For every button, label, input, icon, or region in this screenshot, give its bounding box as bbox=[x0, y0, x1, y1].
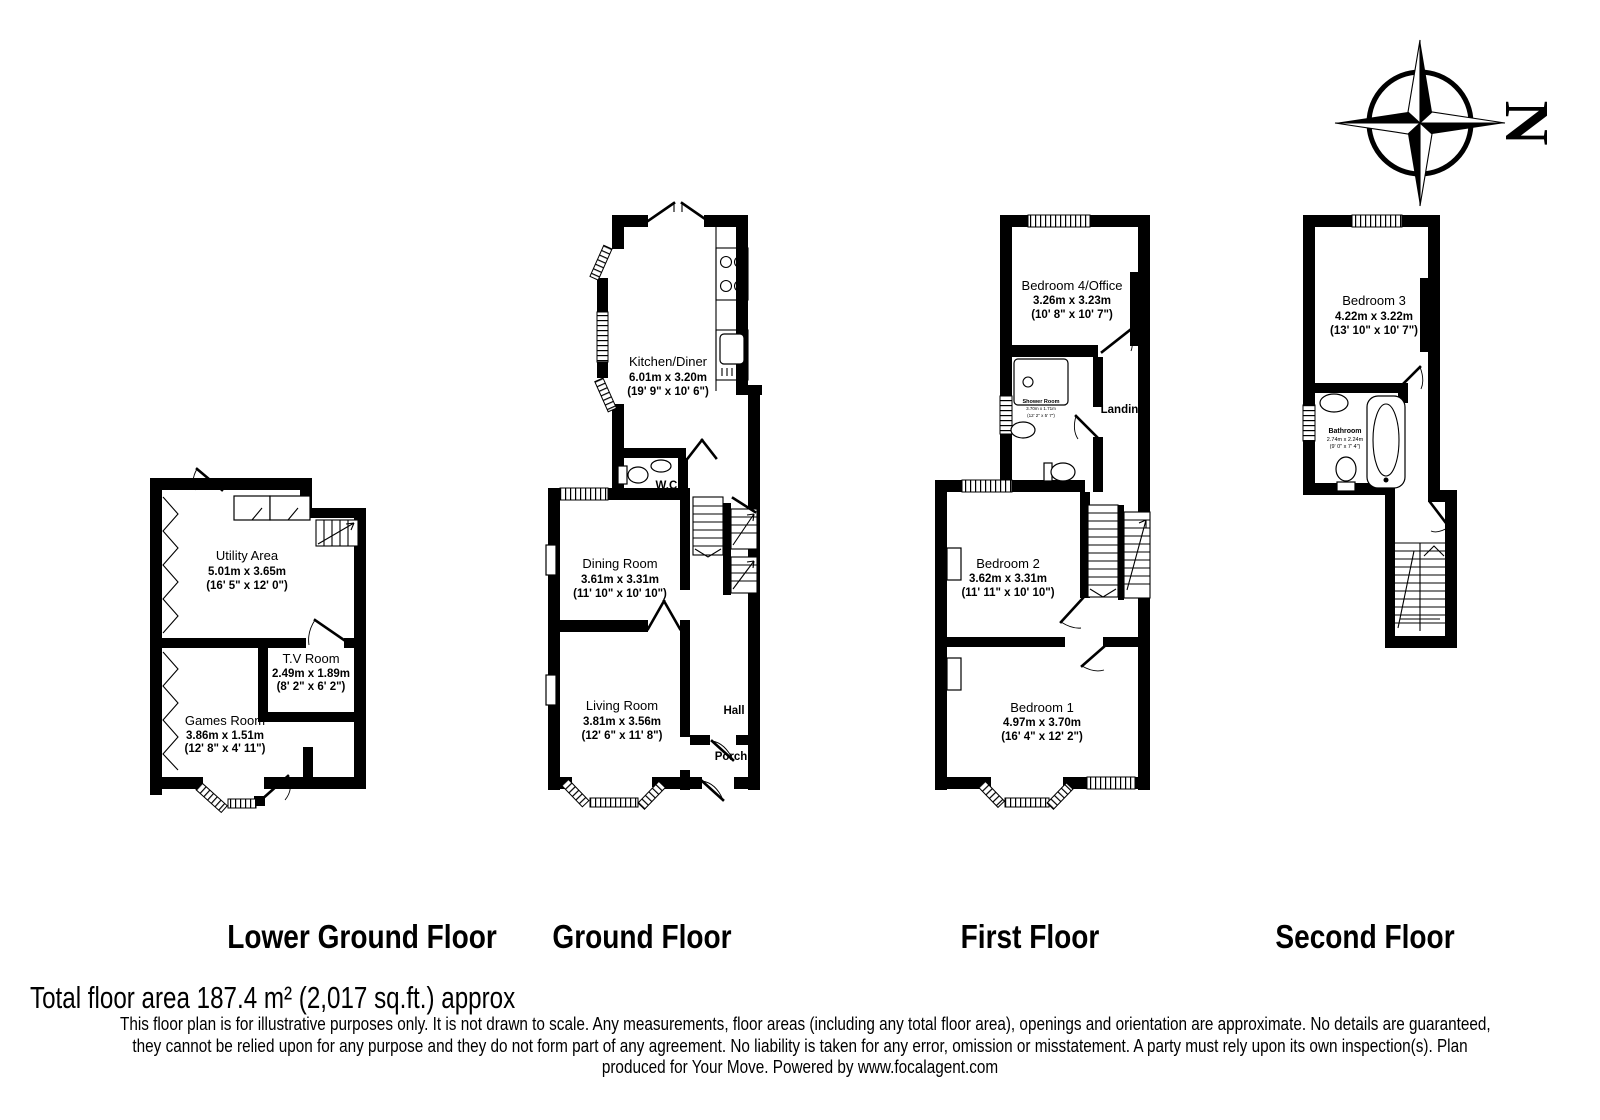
dining-window bbox=[560, 488, 608, 500]
room-size-imperial: (11' 10" x 10' 10") bbox=[573, 588, 667, 600]
basin-icon bbox=[1011, 422, 1035, 438]
stairs bbox=[1395, 543, 1445, 631]
room-size-metric: 3.26m x 3.23m bbox=[1033, 295, 1111, 307]
room-size-imperial: (12' 8" x 4' 11") bbox=[185, 743, 266, 755]
room-size-metric: 3.62m x 3.31m bbox=[969, 573, 1047, 585]
room-name: Bedroom 2 bbox=[976, 556, 1040, 571]
floor-title-first: First Floor bbox=[961, 918, 1100, 956]
room-size-metric: 3.86m x 1.51m bbox=[186, 730, 264, 742]
room-size-imperial: (19' 9" x 10' 6") bbox=[627, 386, 709, 398]
compass-north-letter: N bbox=[1492, 101, 1560, 146]
floorplan-second: Bedroom 3 4.22m x 3.22m (13' 10" x 10' 7… bbox=[1303, 215, 1457, 648]
kitchen-windows bbox=[590, 245, 616, 411]
room-name: Bathroom bbox=[1328, 428, 1361, 435]
room-size-metric: 5.01m x 3.65m bbox=[208, 566, 286, 578]
shower-room-fixtures bbox=[1011, 359, 1075, 481]
total-floor-area: Total floor area 187.4 m² (2,017 sq.ft.)… bbox=[30, 980, 515, 1016]
bay-window bbox=[979, 781, 1073, 809]
room-name: Bedroom 3 bbox=[1342, 293, 1406, 308]
bathtub-icon bbox=[1367, 396, 1405, 488]
bay-window bbox=[562, 779, 666, 809]
floor-title-lower-ground: Lower Ground Floor bbox=[227, 918, 497, 956]
floorplan-lower-ground: Utility Area 5.01m x 3.65m (16' 5" x 12'… bbox=[150, 469, 366, 812]
room-size-imperial: (16' 5" x 12' 0") bbox=[206, 580, 288, 592]
room-size-metric: 6.01m x 3.20m bbox=[629, 372, 707, 384]
disclaimer: This floor plan is for illustrative purp… bbox=[0, 1014, 1600, 1079]
toilet-icon bbox=[618, 466, 648, 484]
room-size-imperial: (12' 2" x 5' 7") bbox=[1027, 413, 1055, 418]
floorplan-ground: Kitchen/Diner 6.01m x 3.20m (19' 9" x 10… bbox=[546, 203, 762, 809]
room-size-metric: 3.61m x 3.31m bbox=[581, 574, 659, 586]
room-size-imperial: (16' 4" x 12' 2") bbox=[1001, 731, 1083, 743]
room-name: W.C. bbox=[656, 480, 681, 492]
room-name: Shower Room bbox=[1023, 399, 1060, 405]
bay-window bbox=[196, 783, 256, 812]
floor-title-second: Second Floor bbox=[1275, 918, 1454, 956]
floorplan-first: Bedroom 4/Office 3.26m x 3.23m (10' 8" x… bbox=[935, 215, 1150, 809]
room-name: Bedroom 4/Office bbox=[1022, 278, 1123, 293]
fitted-units bbox=[234, 496, 310, 520]
stairs bbox=[316, 520, 358, 546]
room-size-imperial: (8' 2" x 6' 2") bbox=[277, 681, 346, 693]
room-size-imperial: (12' 6" x 11' 8") bbox=[582, 730, 663, 742]
room-size-metric: 3.81m x 3.56m bbox=[583, 716, 661, 728]
room-name: Games Room bbox=[185, 713, 265, 728]
room-size-imperial: (10' 8" x 10' 7") bbox=[1031, 309, 1113, 321]
room-size-metric: 4.22m x 3.22m bbox=[1335, 311, 1413, 323]
room-size-metric: 4.97m x 3.70m bbox=[1003, 717, 1081, 729]
room-size-metric: 2.74m x 2.24m bbox=[1327, 437, 1364, 443]
chimney-alcoves bbox=[947, 548, 961, 690]
room-name: Kitchen/Diner bbox=[629, 354, 708, 369]
disclaimer-line: produced for Your Move. Powered by www.f… bbox=[120, 1057, 1480, 1079]
room-size-imperial: (9' 0" x 7' 4") bbox=[1330, 444, 1361, 450]
toilet-icon bbox=[1336, 457, 1356, 491]
room-size-imperial: (11' 11" x 10' 10") bbox=[961, 587, 1054, 599]
floor-title-ground: Ground Floor bbox=[552, 918, 731, 956]
room-labels: Kitchen/Diner 6.01m x 3.20m (19' 9" x 10… bbox=[573, 354, 747, 763]
disclaimer-line: This floor plan is for illustrative purp… bbox=[120, 1014, 1480, 1036]
room-name: Porch bbox=[715, 751, 748, 763]
toilet-icon bbox=[1044, 463, 1075, 481]
room-name: Utility Area bbox=[216, 548, 279, 563]
room-name: T.V Room bbox=[282, 651, 339, 666]
floorplan-page: N bbox=[0, 0, 1600, 1120]
wardrobe-marks bbox=[163, 497, 178, 770]
basin-icon bbox=[651, 460, 671, 472]
compass-rose-icon: N bbox=[1335, 40, 1560, 206]
french-doors bbox=[648, 203, 708, 221]
basin-icon bbox=[1320, 394, 1348, 412]
room-name: Dining Room bbox=[582, 556, 657, 571]
room-name: Landing bbox=[1101, 404, 1146, 416]
room-name: Living Room bbox=[586, 698, 658, 713]
room-name: Hall bbox=[723, 705, 744, 717]
disclaimer-line: they cannot be relied upon for any purpo… bbox=[120, 1036, 1480, 1058]
room-name: Bedroom 1 bbox=[1010, 700, 1074, 715]
room-size-metric: 3.70m x 1.71m bbox=[1026, 406, 1056, 411]
room-size-metric: 2.49m x 1.89m bbox=[272, 668, 350, 680]
room-size-imperial: (13' 10" x 10' 7") bbox=[1330, 325, 1418, 337]
